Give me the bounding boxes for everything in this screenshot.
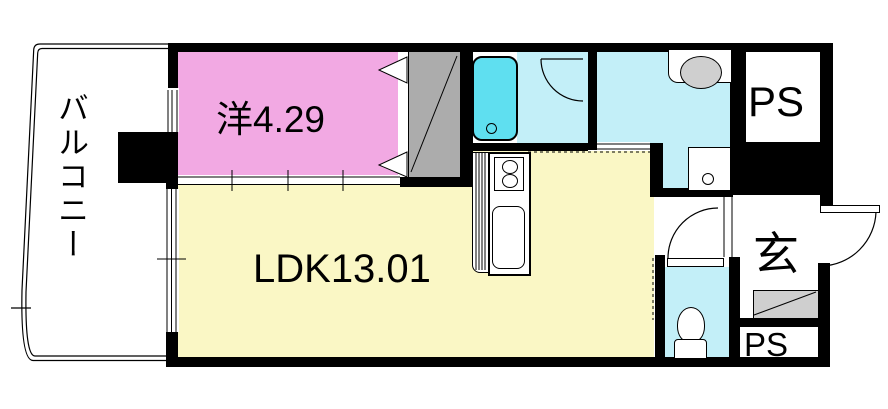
bathroom-floor	[517, 52, 588, 143]
wall	[168, 43, 178, 90]
ps-top-label: PS	[748, 78, 804, 126]
balcony-label: バルコニー	[48, 92, 93, 317]
wall	[466, 143, 588, 151]
wall	[166, 332, 178, 357]
floor-plan: バルコニー 洋4.29 LDK13.01 PS 玄 PS	[0, 0, 888, 409]
ps-bottom-label: PS	[744, 326, 788, 364]
wall	[730, 143, 833, 195]
entrance-door-arc	[822, 212, 876, 266]
vanity-sink-basin	[680, 56, 722, 89]
entrance-door-leaf	[820, 205, 880, 213]
toilet-door-leaf	[667, 258, 724, 267]
washing-machine-drain	[702, 173, 714, 185]
closet-floor	[408, 52, 461, 177]
toilet-door-arc	[668, 208, 718, 258]
window-ldk-balcony	[165, 189, 179, 332]
wall	[118, 132, 178, 183]
stove-burner	[502, 160, 518, 174]
shoe-cabinet	[753, 290, 819, 319]
western-room-label: 洋4.29	[216, 89, 325, 143]
wall	[818, 263, 830, 360]
toilet-bowl	[677, 307, 705, 343]
kitchen-sink	[492, 206, 525, 269]
washroom-sliding-door	[597, 142, 650, 151]
wall	[655, 255, 665, 357]
window-western-room	[166, 88, 179, 132]
toilet-tank	[674, 339, 707, 359]
closet-door-track	[398, 52, 408, 177]
wall	[166, 357, 830, 367]
bathtub-drain	[486, 123, 497, 134]
partition-western-ldk	[178, 175, 400, 185]
stove-burner	[502, 174, 518, 188]
entrance-label: 玄	[753, 218, 799, 284]
entrance-threshold-lines	[724, 197, 732, 257]
ldk-label: LDK13.01	[253, 247, 431, 292]
wall	[400, 177, 473, 187]
wall	[588, 43, 597, 150]
wall	[729, 257, 740, 357]
wall	[730, 43, 744, 143]
